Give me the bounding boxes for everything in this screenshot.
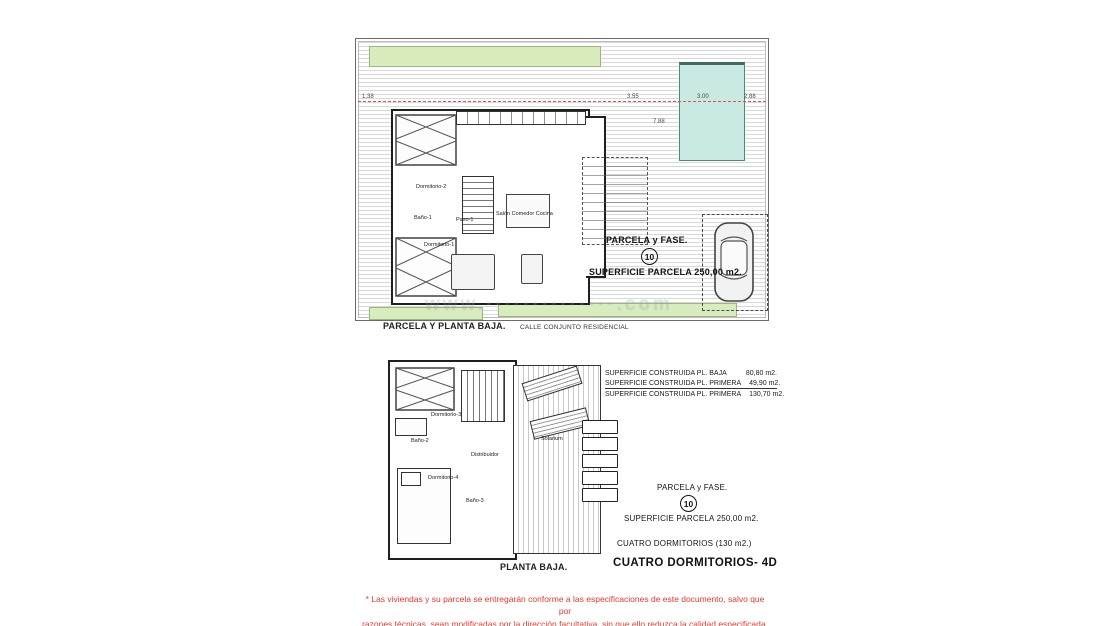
built-areas-table: SUPERFICIE CONSTRUIDA PL. BAJA 80,80 m2.…	[605, 368, 777, 399]
car-icon	[712, 221, 756, 303]
parcel-area-label: SUPERFICIE PARCELA 250,00 m2.	[624, 514, 759, 523]
area-value: 130,70 m2.	[749, 391, 784, 398]
room-label-hall: Distribuidor	[471, 452, 499, 458]
parcel-number-badge: 10	[680, 495, 697, 512]
louver-slat	[582, 488, 618, 502]
area-label: SUPERFICIE CONSTRUIDA PL. PRIMERA	[605, 380, 741, 387]
parcel-number-badge: 10	[641, 248, 658, 265]
model-title: CUATRO DORMITORIOS- 4D	[613, 557, 777, 569]
area-row: SUPERFICIE CONSTRUIDA PL. PRIMERA 49,90 …	[605, 378, 777, 388]
dimension-label: 2.88	[744, 94, 756, 100]
street-label: CALLE CONJUNTO RESIDENCIAL	[520, 324, 629, 331]
site-plan-caption: PARCELA Y PLANTA BAJA.	[383, 321, 506, 331]
stairs	[461, 370, 505, 422]
bath-fixture	[395, 418, 427, 436]
louver-slat	[582, 437, 618, 451]
dimension-label: 1.38	[362, 94, 374, 100]
floor-plan-caption: PLANTA BAJA.	[500, 562, 567, 572]
area-value: 49,90 m2.	[749, 380, 780, 387]
stairs	[462, 176, 494, 234]
room-label-bath3: Baño-3	[466, 498, 484, 504]
disclaimer-line1: * Las viviendas y su parcela se entregar…	[366, 594, 765, 616]
dimension-label: 3.00	[697, 94, 709, 100]
parcel-label: PARCELA y FASE.	[606, 235, 688, 245]
room-label-bedroom4: Dormitorio-4	[428, 475, 458, 481]
setback-line	[358, 101, 766, 102]
first-floor-plan: Dormitorio-3 Baño-2 Distribuidor Dormito…	[383, 358, 618, 570]
room-label-bedroom3: Dormitorio-3	[431, 412, 461, 418]
room-label-bedroom1: Dormitorio-1	[424, 242, 454, 248]
room-label-bath1: Baño-1	[414, 215, 432, 221]
grass-strip-top	[369, 46, 601, 67]
area-row: SUPERFICIE CONSTRUIDA PL. BAJA 80,80 m2.	[605, 368, 777, 378]
area-label: SUPERFICIE CONSTRUIDA PL. PRIMERA	[605, 391, 741, 398]
disclaimer: * Las viviendas y su parcela se entregar…	[360, 593, 770, 626]
parcel-area-label: SUPERFICIE PARCELA 250,00 m2.	[589, 267, 742, 277]
room-label-living: Salón Comedor Cocina	[496, 211, 553, 217]
room-label-hall: Paso-1	[456, 217, 473, 223]
bed-wardrobe-icon	[395, 367, 455, 411]
dimension-label: 7.88	[653, 119, 665, 125]
site-plan: 1.38 3.55 3.00 2.88 7.88 Dormitorio-2 Ba…	[355, 38, 769, 321]
disclaimer-line2: razones técnicas, sean modificadas por l…	[362, 619, 768, 626]
louver-slat	[582, 420, 618, 434]
plan-sheet: 1.38 3.55 3.00 2.88 7.88 Dormitorio-2 Ba…	[0, 0, 1110, 626]
kitchen-counter	[456, 111, 586, 125]
pergola-grid	[582, 157, 648, 245]
bedrooms-label: CUATRO DORMITORIOS (130 m2.)	[617, 539, 752, 548]
parcel-label: PARCELA y FASE.	[657, 483, 727, 492]
area-value: 80,80 m2.	[746, 370, 777, 377]
area-row: SUPERFICIE CONSTRUIDA PL. PRIMERA 130,70…	[605, 388, 777, 399]
room-label-solarium: Solarium	[541, 436, 563, 442]
watermark: www.··············.com	[425, 294, 673, 316]
louver-slat	[582, 471, 618, 485]
sofa	[451, 254, 495, 290]
side-table	[521, 254, 543, 284]
louver-slat	[582, 454, 618, 468]
room-label-bath2: Baño-2	[411, 438, 429, 444]
pillow	[401, 472, 421, 486]
pool	[679, 62, 745, 161]
room-label-bedroom2: Dormitorio-2	[416, 184, 446, 190]
area-label: SUPERFICIE CONSTRUIDA PL. BAJA	[605, 370, 727, 377]
bed-wardrobe-icon	[395, 114, 457, 166]
dimension-label: 3.55	[627, 94, 639, 100]
